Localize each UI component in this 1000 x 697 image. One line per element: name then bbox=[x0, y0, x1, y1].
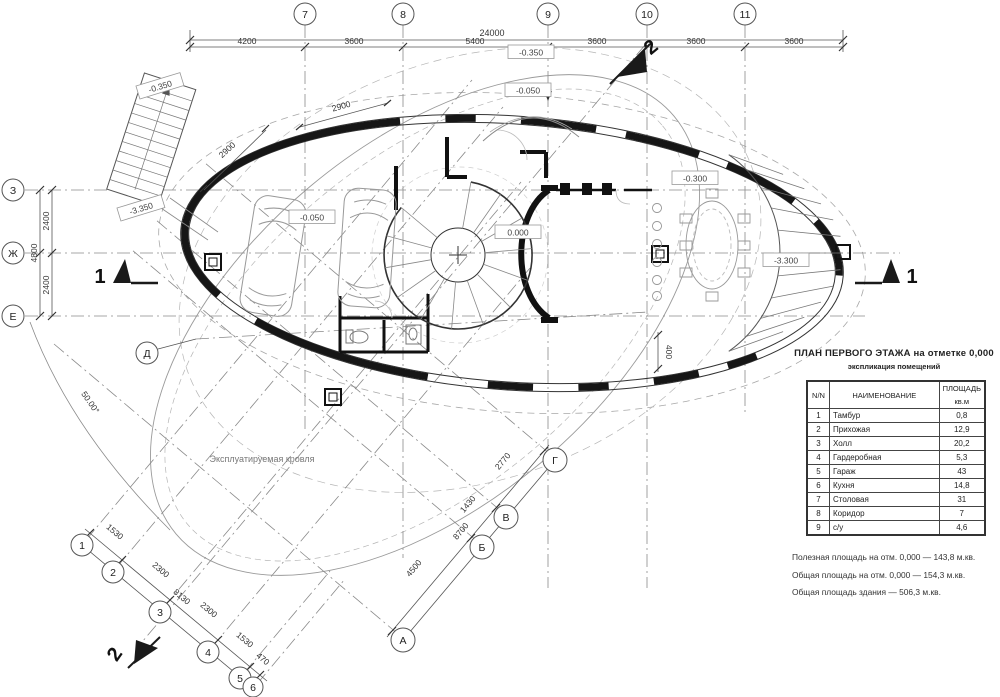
table-row: 5Гараж43 bbox=[807, 465, 985, 479]
axis-label-8: 8 bbox=[400, 9, 406, 21]
row-area: 14,8 bbox=[939, 479, 985, 493]
spiral-center-cross bbox=[449, 246, 467, 264]
elev-value: -0.350 bbox=[519, 48, 543, 58]
roof-label: Эксплуатируемая кровля bbox=[209, 454, 314, 464]
car-2-body bbox=[337, 187, 397, 308]
dim-left-total: 4800 bbox=[29, 243, 39, 262]
table-row: 9с/у4,6 bbox=[807, 521, 985, 536]
row-name: Коридор bbox=[830, 507, 940, 521]
section1-left-arrow bbox=[113, 259, 131, 283]
row-num: 8 bbox=[807, 507, 830, 521]
column-south bbox=[325, 389, 341, 405]
row-name: с/у bbox=[830, 521, 940, 536]
row-num: 5 bbox=[807, 465, 830, 479]
plan-subtitle: экспликация помещений bbox=[788, 362, 1000, 371]
section2-bottom-num: 2 bbox=[103, 644, 127, 666]
row-area: 4,6 bbox=[939, 521, 985, 536]
axis-label-e: Е bbox=[9, 311, 16, 323]
row-area: 43 bbox=[939, 465, 985, 479]
dining-chairs bbox=[680, 189, 750, 301]
row-num: 6 bbox=[807, 479, 830, 493]
row-name: Гардеробная bbox=[830, 451, 940, 465]
axis-label-n4: 4 bbox=[205, 647, 211, 659]
axis-label-n1: 1 bbox=[79, 540, 85, 552]
column-garage-inner bbox=[209, 258, 217, 266]
col-header-area-line2: кв.м bbox=[955, 397, 970, 406]
dim-top-s0: 4200 bbox=[238, 36, 257, 46]
entrance-porch bbox=[483, 91, 579, 141]
dim-top-s3: 3600 bbox=[588, 36, 607, 46]
row-num: 7 bbox=[807, 493, 830, 507]
elev-value: -3.300 bbox=[774, 256, 798, 266]
dim-top-s5: 3600 bbox=[785, 36, 804, 46]
col-header-name: НАИМЕНОВАНИЕ bbox=[830, 381, 940, 409]
dim-left-s0: 2400 bbox=[41, 211, 51, 230]
table-header-row: N/N НАИМЕНОВАНИЕ ПЛОЩАДЬ кв.м bbox=[807, 381, 985, 409]
floor-plan-canvas: 24000 4200 3600 5400 3600 3600 3600 4800… bbox=[0, 0, 1000, 697]
row-area: 5,3 bbox=[939, 451, 985, 465]
dim-left-s1: 2400 bbox=[41, 275, 51, 294]
dim-dn-s2: 2300 bbox=[198, 600, 219, 620]
column-dining-inner bbox=[656, 250, 664, 258]
car-2 bbox=[337, 187, 397, 308]
row-area: 31 bbox=[939, 493, 985, 507]
note-useful-area: Полезная площадь на отм. 0,000 — 143,8 м… bbox=[792, 549, 1000, 567]
col-header-area: ПЛОЩАДЬ кв.м bbox=[939, 381, 985, 409]
dining-table bbox=[686, 201, 738, 289]
section1-right-num: 1 bbox=[906, 266, 917, 288]
axis-label-lb: Б bbox=[479, 542, 486, 554]
pier-3 bbox=[602, 183, 612, 195]
row-area: 0,8 bbox=[939, 409, 985, 423]
axis-label-n2: 2 bbox=[110, 567, 116, 579]
table-row: 1Тамбур0,8 bbox=[807, 409, 985, 423]
dim-2900a: 2900 bbox=[217, 140, 238, 160]
dim-dn-s3: 1530 bbox=[234, 630, 255, 650]
row-name: Холл bbox=[830, 437, 940, 451]
interior-walls bbox=[340, 137, 652, 352]
grid-line-la bbox=[54, 344, 398, 634]
dim-top-s1: 3600 bbox=[345, 36, 364, 46]
grid-line-n3 bbox=[164, 182, 521, 607]
axis-label-11: 11 bbox=[740, 9, 751, 21]
crescent-flange-bottom bbox=[541, 317, 558, 323]
row-name: Прихожая bbox=[830, 423, 940, 437]
dim-dn-s1: 2300 bbox=[150, 560, 171, 580]
door-swing-wc bbox=[375, 301, 392, 318]
row-num: 9 bbox=[807, 521, 830, 536]
room-schedule-table: N/N НАИМЕНОВАНИЕ ПЛОЩАДЬ кв.м 1Тамбур0,8… bbox=[806, 380, 986, 536]
door-swings bbox=[375, 130, 630, 318]
elev-porch: -0.350 bbox=[508, 45, 554, 59]
pier-1 bbox=[560, 183, 570, 195]
bar-stools bbox=[653, 204, 662, 301]
crescent-flange-top bbox=[541, 185, 558, 191]
col-header-area-line1: ПЛОЩАДЬ bbox=[943, 384, 981, 393]
dim-dn-s4: 470 bbox=[254, 650, 272, 667]
row-name: Кухня bbox=[830, 479, 940, 493]
axis-label-10: 10 bbox=[641, 9, 653, 21]
axis-label-lg: Г bbox=[552, 455, 558, 467]
dim-dl-s0: 4500 bbox=[404, 557, 424, 578]
crescent-wall bbox=[521, 190, 549, 318]
dining-table-inner bbox=[693, 209, 731, 281]
door-swing-entry bbox=[497, 130, 527, 160]
note-total-area-level: Общая площадь на отм. 0,000 — 154,3 м.кв… bbox=[792, 567, 1000, 585]
col-header-num: N/N bbox=[807, 381, 830, 409]
dim-400: 400 bbox=[664, 345, 674, 359]
axis-label-lv: В bbox=[502, 512, 509, 524]
title-block: ПЛАН ПЕРВОГО ЭТАЖА на отметке 0,000 эксп… bbox=[788, 348, 1000, 602]
column-south-inner bbox=[329, 393, 337, 401]
grid-line-lv bbox=[156, 220, 501, 511]
plan-title: ПЛАН ПЕРВОГО ЭТАЖА на отметке 0,000 bbox=[788, 348, 1000, 359]
axis-label-n6: 6 bbox=[250, 682, 256, 694]
table-row: 4Гардеробная5,3 bbox=[807, 451, 985, 465]
angle-label: 50.00° bbox=[79, 389, 101, 415]
row-num: 2 bbox=[807, 423, 830, 437]
section2-trace bbox=[137, 45, 645, 648]
axis-label-n5: 5 bbox=[237, 673, 243, 685]
axis-label-z: З bbox=[10, 185, 16, 197]
row-num: 1 bbox=[807, 409, 830, 423]
row-name: Тамбур bbox=[830, 409, 940, 423]
dim-top-s2: 5400 bbox=[466, 36, 485, 46]
axis-label-zh: Ж bbox=[8, 248, 18, 260]
columns bbox=[205, 245, 850, 405]
table-row: 8Коридор7 bbox=[807, 507, 985, 521]
axis-label-d: Д bbox=[143, 348, 150, 360]
table-row: 2Прихожая12,9 bbox=[807, 423, 985, 437]
axis-label-la: А bbox=[399, 635, 406, 647]
elev-hall: 0.000 bbox=[495, 225, 541, 239]
column-dining bbox=[652, 246, 668, 262]
axis-label-9: 9 bbox=[545, 9, 551, 21]
elev-fan-stair: -3.300 bbox=[763, 253, 809, 267]
note-total-area-building: Общая площадь здания — 506,3 м.кв. bbox=[792, 584, 1000, 602]
dim-dl-s1: 1430 bbox=[458, 493, 478, 514]
row-name: Гараж bbox=[830, 465, 940, 479]
row-num: 4 bbox=[807, 451, 830, 465]
grid-line-lg bbox=[205, 163, 550, 454]
dim-top-s4: 3600 bbox=[687, 36, 706, 46]
hall-walls bbox=[396, 137, 546, 210]
table-row: 7Столовая31 bbox=[807, 493, 985, 507]
row-area: 20,2 bbox=[939, 437, 985, 451]
section1-left-num: 1 bbox=[94, 266, 105, 288]
door-swing-hall bbox=[616, 190, 630, 204]
elev-value: -0.050 bbox=[516, 86, 540, 96]
elev-value: -0.300 bbox=[683, 174, 707, 184]
dim-dl-s2: 2770 bbox=[493, 450, 513, 471]
dim-2900b: 2900 bbox=[331, 99, 352, 114]
elev-garage: -0.050 bbox=[289, 210, 335, 224]
elev-porch-low: -0.050 bbox=[505, 83, 551, 97]
grid-line-n6 bbox=[257, 579, 345, 684]
grid-line-lb bbox=[132, 250, 477, 541]
area-notes: Полезная площадь на отм. 0,000 — 143,8 м… bbox=[792, 549, 1000, 602]
row-name: Столовая bbox=[830, 493, 940, 507]
section1-right-arrow bbox=[882, 259, 900, 283]
elev-value: -0.050 bbox=[300, 213, 324, 223]
row-num: 3 bbox=[807, 437, 830, 451]
table-row: 3Холл20,2 bbox=[807, 437, 985, 451]
dim-dn-s0: 1530 bbox=[104, 522, 125, 542]
table-row: 6Кухня14,8 bbox=[807, 479, 985, 493]
elev-dining: -0.300 bbox=[672, 171, 718, 185]
row-area: 12,9 bbox=[939, 423, 985, 437]
pier-2 bbox=[582, 183, 592, 195]
axis-d-leader bbox=[158, 339, 196, 349]
elev-value: 0.000 bbox=[507, 228, 529, 238]
spiral-staircase bbox=[384, 182, 532, 329]
axis-label-n3: 3 bbox=[157, 607, 163, 619]
axis-label-7: 7 bbox=[302, 9, 308, 21]
section2-bottom-line bbox=[128, 637, 160, 668]
row-area: 7 bbox=[939, 507, 985, 521]
